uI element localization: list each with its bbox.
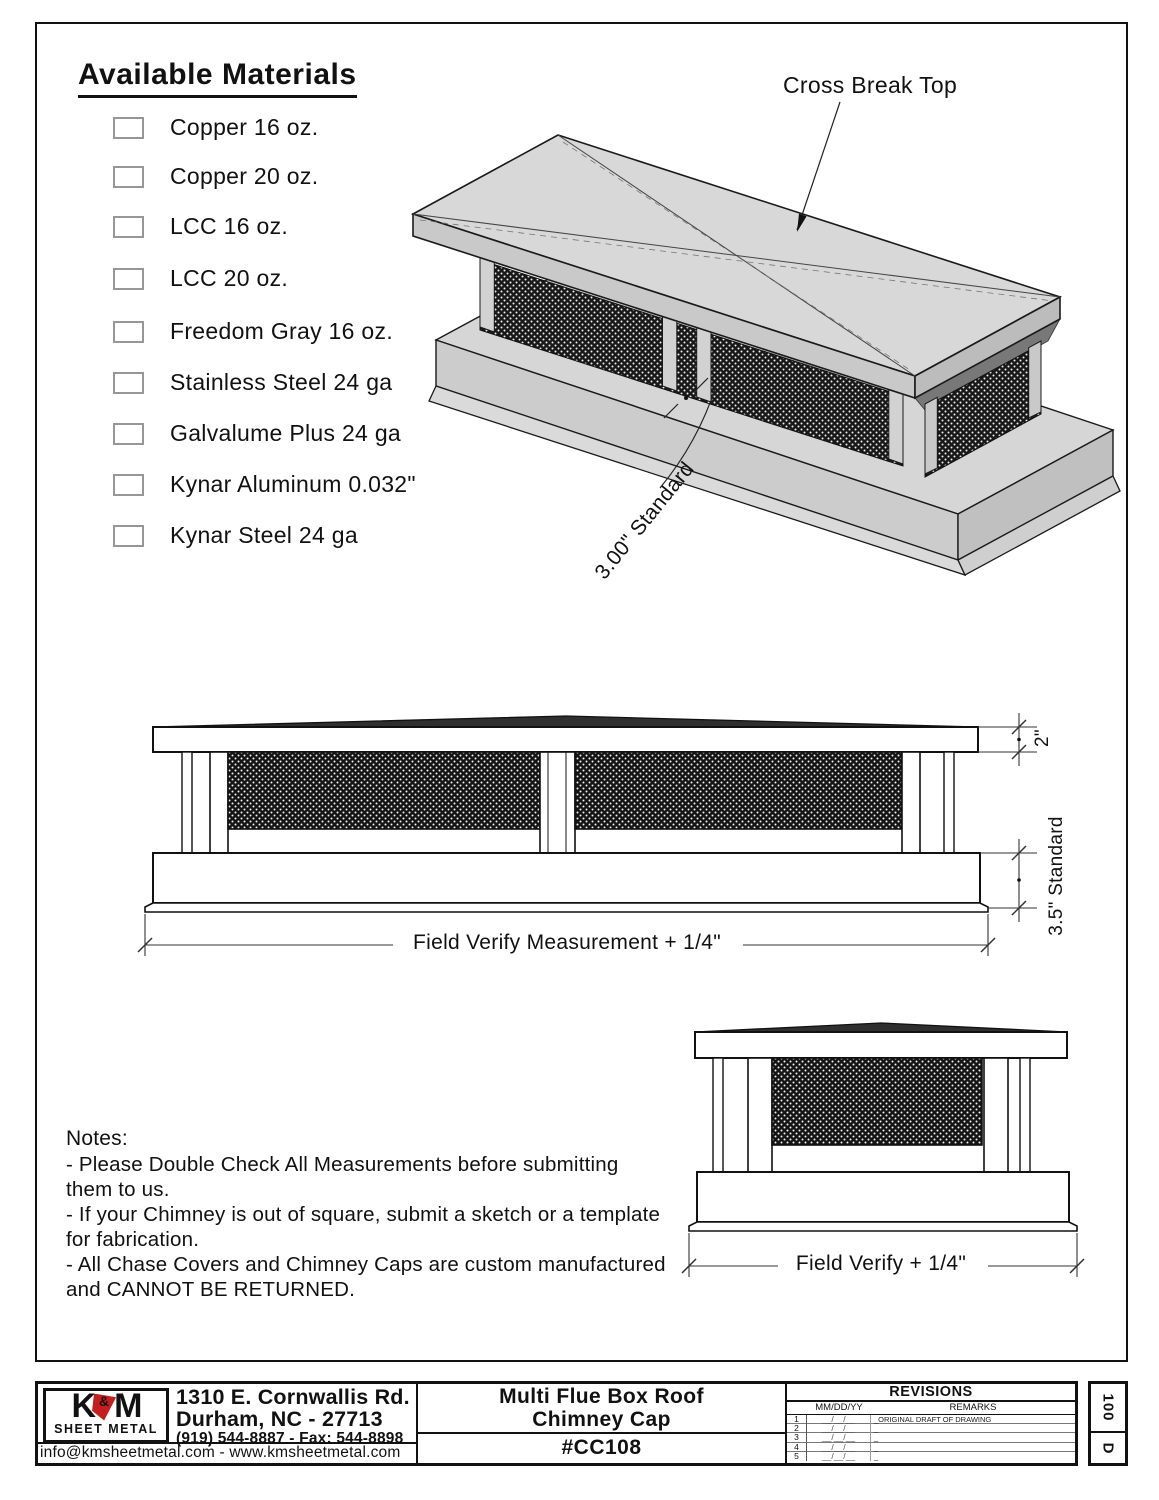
post [697, 327, 711, 402]
title-block-title: Multi Flue Box Roof Chimney Cap #CC108 [418, 1384, 787, 1463]
material-checkbox[interactable] [113, 166, 144, 188]
post [1029, 341, 1041, 418]
drawing-title-line2: Chimney Cap [532, 1408, 671, 1431]
material-label: Stainless Steel 24 ga [170, 369, 392, 396]
corner-post [902, 752, 920, 853]
material-label: Kynar Aluminum 0.032" [170, 471, 416, 498]
sheet-code-top-cell: 100 [1091, 1384, 1125, 1433]
corner-return [713, 1058, 723, 1172]
notes-title: Notes: [66, 1126, 666, 1152]
cap-band [153, 727, 978, 752]
sheet-revision-letter: D [1100, 1442, 1117, 1454]
material-checkbox[interactable] [113, 216, 144, 238]
title-block-company: K & M SHEET METAL 1310 E. Cornwallis Rd.… [38, 1384, 418, 1463]
logo-letter-m: M [114, 1392, 140, 1420]
cross-break-leader [797, 102, 840, 232]
base-flange [145, 903, 988, 912]
front-dimension-label: Field Verify Measurement + 1/4" [292, 931, 842, 955]
note-line: - All Chase Covers and Chimney Caps are … [66, 1252, 666, 1302]
dim-35-label: 3.5" Standard [1046, 801, 1068, 951]
roof-peak [153, 716, 978, 727]
address-line1: 1310 E. Cornwallis Rd. [176, 1386, 416, 1408]
dim-2in-label: 2" [1032, 718, 1054, 758]
material-label: Freedom Gray 16 oz. [170, 318, 393, 345]
company-address: 1310 E. Cornwallis Rd. Durham, NC - 2771… [176, 1386, 416, 1447]
cross-break-label: Cross Break Top [783, 72, 957, 99]
material-checkbox[interactable] [113, 525, 144, 547]
material-checkbox[interactable] [113, 117, 144, 139]
logo-red-triangle: & [92, 1394, 116, 1421]
col-date: MM/DD/YY [807, 1402, 871, 1414]
roof-peak [695, 1023, 1067, 1032]
materials-title: Available Materials [78, 58, 357, 98]
material-label: Copper 16 oz. [170, 114, 318, 141]
material-checkbox[interactable] [113, 372, 144, 394]
note-line: - If your Chimney is out of square, subm… [66, 1202, 666, 1252]
revision-row: 5 __/__/__ _ [787, 1452, 1075, 1461]
material-checkbox[interactable] [113, 321, 144, 343]
revisions-header: REVISIONS [787, 1384, 1075, 1402]
revisions-table: REVISIONS MM/DD/YY REMARKS 1 __/__/__ _O… [787, 1384, 1075, 1463]
material-label: LCC 20 oz. [170, 265, 288, 292]
address-line2: Durham, NC - 27713 [176, 1408, 416, 1430]
notes-section: Notes: - Please Double Check All Measure… [66, 1126, 666, 1302]
drawing-title-line1: Multi Flue Box Roof [499, 1385, 704, 1408]
material-label: LCC 16 oz. [170, 213, 288, 240]
base-flange [689, 1222, 1077, 1231]
post [480, 257, 494, 332]
material-checkbox[interactable] [113, 268, 144, 290]
corner-return [1020, 1058, 1030, 1172]
isometric-view [398, 92, 1128, 677]
mesh-panel [772, 1058, 982, 1145]
corner-post [748, 1058, 772, 1172]
sheet-code-box: 100 D [1088, 1381, 1128, 1466]
cap-band [695, 1032, 1067, 1058]
material-label: Copper 20 oz. [170, 163, 318, 190]
logo-letter-k: K [72, 1392, 95, 1420]
corner-return [944, 752, 954, 853]
material-checkbox[interactable] [113, 423, 144, 445]
logo-subtitle: SHEET METAL [46, 1422, 166, 1436]
sheet-number: 100 [1100, 1393, 1117, 1421]
km-logo: K & M SHEET METAL [43, 1388, 169, 1443]
base-band [153, 853, 980, 903]
material-label: Galvalume Plus 24 ga [170, 420, 401, 447]
part-number: #CC108 [561, 1436, 641, 1460]
title-block: K & M SHEET METAL 1310 E. Cornwallis Rd.… [35, 1381, 1078, 1466]
post [925, 397, 937, 474]
post [663, 316, 677, 391]
sheet-code-bottom-cell: D [1091, 1433, 1125, 1463]
front-elevation [135, 700, 1095, 965]
post [889, 388, 903, 464]
material-checkbox[interactable] [113, 474, 144, 496]
logo-ampersand: & [99, 1394, 109, 1408]
mesh-panel [228, 752, 540, 829]
email-website: info@kmsheetmetal.com - www.kmsheetmetal… [38, 1442, 416, 1463]
material-label: Kynar Steel 24 ga [170, 522, 358, 549]
base-band [697, 1172, 1069, 1222]
center-post [540, 752, 575, 853]
col-num [787, 1402, 807, 1414]
height-dimensions [978, 713, 1037, 922]
mesh-panel [575, 752, 902, 829]
corner-post [210, 752, 228, 853]
corner-post [984, 1058, 1008, 1172]
side-dimension-label: Field Verify + 1/4" [739, 1252, 1023, 1276]
note-line: - Please Double Check All Measurements b… [66, 1152, 666, 1202]
col-remarks: REMARKS [871, 1402, 1075, 1414]
corner-return [182, 752, 192, 853]
